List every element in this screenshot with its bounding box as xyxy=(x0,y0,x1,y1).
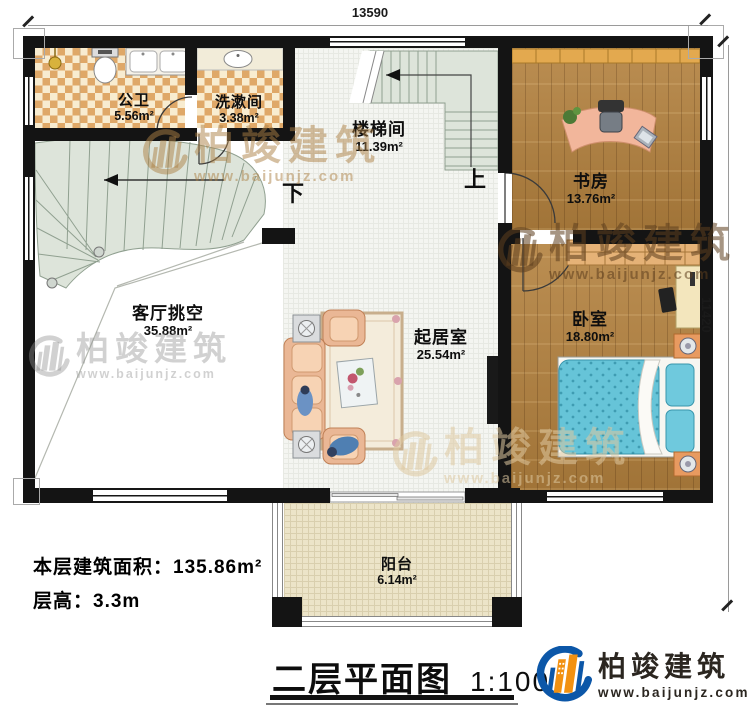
floor-height-text: 层高：3.3m xyxy=(33,586,140,613)
window xyxy=(700,77,713,140)
study-shelf xyxy=(512,49,700,63)
room-area: 18.80m² xyxy=(540,330,640,345)
stair-up-label: 上 xyxy=(464,162,486,194)
room-name: 书房 xyxy=(541,172,641,192)
balcony-column xyxy=(492,597,522,627)
floor-area-text: 本层建筑面积：135.86m² xyxy=(33,552,262,579)
wall-segment xyxy=(465,488,520,503)
wall-segment xyxy=(520,490,547,503)
wall-segment xyxy=(227,128,295,141)
bed xyxy=(558,357,701,457)
wash-basin xyxy=(197,48,283,70)
armchair-top xyxy=(323,310,365,346)
room-label-void: 客厅挑空 35.88m² xyxy=(108,304,228,338)
wall-column xyxy=(262,228,295,244)
toilet xyxy=(92,48,118,83)
dimension-right: 11420 xyxy=(698,285,714,345)
wall-segment xyxy=(227,488,330,503)
spiral-stair xyxy=(35,137,265,288)
room-area: 5.56m² xyxy=(94,109,174,123)
room-area: 6.14m² xyxy=(347,573,447,587)
coffee-table xyxy=(337,358,378,408)
study-desk xyxy=(562,100,657,152)
room-label-wash: 洗漱间 3.38m² xyxy=(189,94,289,126)
room-area: 25.54m² xyxy=(391,348,491,363)
armchair-bottom xyxy=(323,428,365,464)
room-label-balcony: 阳台 6.14m² xyxy=(347,556,447,588)
room-label-bedroom: 卧室 18.80m² xyxy=(540,310,640,344)
stair-down-label: 下 xyxy=(282,176,304,208)
witness-box xyxy=(13,478,40,505)
room-name: 客厅挑空 xyxy=(108,304,228,324)
side-table-bottom xyxy=(293,431,320,458)
room-label-bath: 公卫 5.56m² xyxy=(94,92,174,124)
window xyxy=(93,488,227,503)
company-logo: 柏竣建筑 www.baijunjz.com xyxy=(536,646,750,706)
dimension-top: 13590 xyxy=(310,5,430,20)
title-block: 二层平面图 1:100 xyxy=(272,652,550,701)
room-area: 11.39m² xyxy=(329,140,429,155)
witness-box xyxy=(13,28,45,59)
dimension-line-top xyxy=(28,25,708,26)
title-underline-thin xyxy=(266,703,518,705)
room-area: 3.38m² xyxy=(189,111,289,125)
wall-segment xyxy=(498,244,511,490)
room-label-study: 书房 13.76m² xyxy=(541,172,641,206)
wall-segment xyxy=(573,230,713,244)
double-sink-vanity xyxy=(126,48,192,75)
room-area: 13.76m² xyxy=(541,192,641,207)
room-name: 卧室 xyxy=(540,310,640,330)
wall-segment xyxy=(498,230,520,244)
wall-segment xyxy=(465,36,713,48)
dimension-line-right xyxy=(728,45,729,612)
company-name: 柏竣建筑 xyxy=(598,653,750,681)
wall-segment xyxy=(35,128,197,141)
wall-segment xyxy=(498,48,512,173)
balcony-railing xyxy=(272,616,522,627)
company-logo-icon xyxy=(536,646,592,706)
room-area: 35.88m² xyxy=(108,324,228,339)
room-label-living: 起居室 25.54m² xyxy=(391,328,491,362)
room-label-stairwell: 楼梯间 11.39m² xyxy=(329,120,429,154)
title-underline xyxy=(270,695,514,700)
nightstand-bottom xyxy=(674,452,702,476)
room-name: 公卫 xyxy=(94,92,174,109)
room-name: 起居室 xyxy=(391,328,491,348)
company-url: www.baijunjz.com xyxy=(598,685,750,700)
sliding-door-balcony xyxy=(330,492,465,502)
room-name: 楼梯间 xyxy=(329,120,429,140)
window xyxy=(330,36,465,48)
room-name: 洗漱间 xyxy=(189,94,289,111)
shower-head xyxy=(49,48,80,128)
wall-segment xyxy=(23,36,330,48)
page-title: 二层平面图 xyxy=(272,652,452,701)
room-name: 阳台 xyxy=(347,556,447,573)
sofa-left xyxy=(284,338,325,440)
company-logo-text: 柏竣建筑 www.baijunjz.com xyxy=(598,653,750,700)
balcony-column xyxy=(272,597,302,627)
window xyxy=(547,490,663,503)
side-table-top xyxy=(293,315,320,342)
wall-segment xyxy=(23,260,35,503)
floor-plan-page: 13590 11420 公卫 5.56m² 洗漱间 3.38m² 楼梯间 11.… xyxy=(0,0,750,716)
wall-segment xyxy=(185,48,197,95)
window xyxy=(23,77,35,125)
wall-segment xyxy=(23,125,35,177)
tv-console xyxy=(658,266,702,328)
window xyxy=(23,177,35,260)
